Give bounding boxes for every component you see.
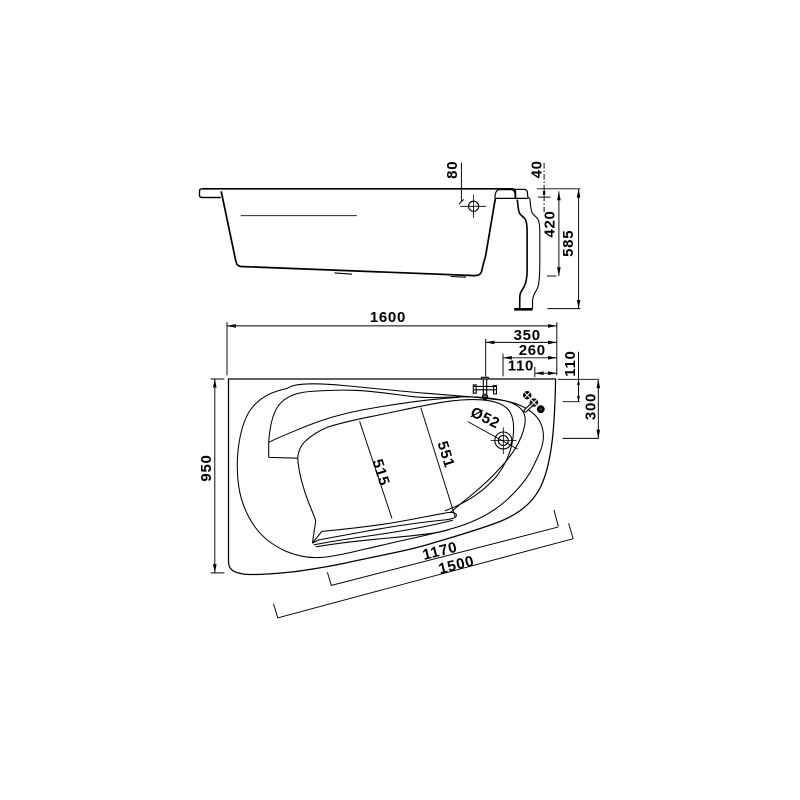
svg-text:110: 110: [508, 358, 534, 375]
svg-text:260: 260: [519, 342, 546, 359]
svg-text:1600: 1600: [370, 309, 406, 326]
svg-text:80: 80: [444, 161, 461, 179]
svg-text:300: 300: [582, 393, 599, 420]
svg-text:420: 420: [542, 210, 559, 237]
svg-text:551: 551: [434, 439, 458, 470]
svg-text:585: 585: [560, 230, 577, 257]
svg-text:Ø52: Ø52: [468, 404, 503, 433]
svg-text:950: 950: [198, 454, 215, 481]
svg-text:110: 110: [562, 350, 579, 376]
svg-text:40: 40: [529, 160, 546, 178]
